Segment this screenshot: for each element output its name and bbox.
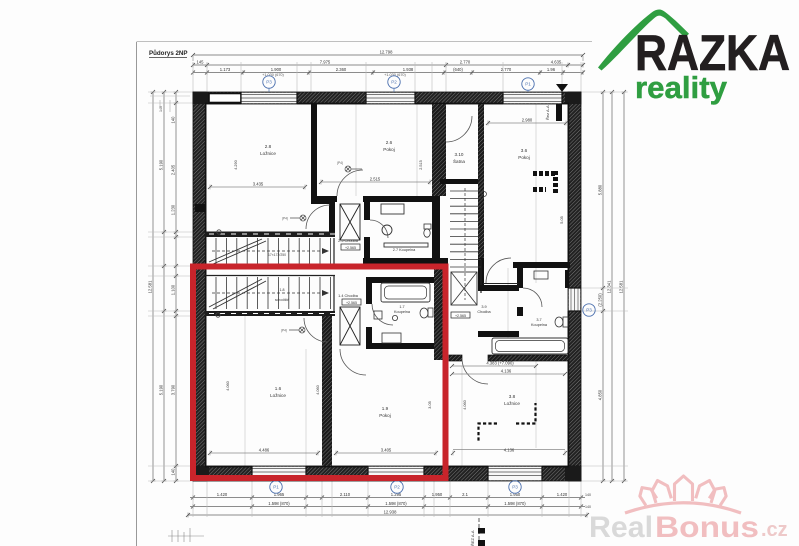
svg-text:1.950: 1.950 bbox=[432, 492, 443, 497]
svg-text:4.383 (+7.090): 4.383 (+7.090) bbox=[486, 361, 514, 366]
svg-text:P1: P1 bbox=[525, 82, 531, 87]
svg-text:1.598 (870): 1.598 (870) bbox=[385, 501, 407, 506]
svg-text:Real: Real bbox=[589, 511, 653, 544]
svg-text:140: 140 bbox=[159, 106, 163, 112]
svg-text:3.790: 3.790 bbox=[171, 384, 176, 395]
svg-text:1.420: 1.420 bbox=[557, 492, 568, 497]
svg-text:2.360: 2.360 bbox=[336, 67, 347, 72]
svg-text:Koupelna: Koupelna bbox=[394, 310, 411, 314]
svg-text:3.8: 3.8 bbox=[509, 394, 516, 399]
svg-text:Ložnice: Ložnice bbox=[260, 151, 276, 156]
svg-text:reality: reality bbox=[635, 70, 728, 105]
svg-text:4.060: 4.060 bbox=[463, 400, 467, 410]
svg-text:.cz: .cz bbox=[761, 519, 788, 541]
svg-text:1.9: 1.9 bbox=[382, 406, 389, 411]
svg-text:1.96: 1.96 bbox=[547, 67, 556, 72]
svg-text:3.6: 3.6 bbox=[521, 148, 528, 153]
svg-text:4.060: 4.060 bbox=[226, 381, 230, 391]
svg-text:4.060: 4.060 bbox=[316, 385, 320, 395]
svg-text:2.515: 2.515 bbox=[370, 177, 381, 182]
svg-text:1.8: 1.8 bbox=[280, 288, 285, 292]
svg-text:4.850: 4.850 bbox=[598, 389, 603, 400]
svg-text:5.05: 5.05 bbox=[560, 216, 564, 223]
svg-text:(P4): (P4) bbox=[337, 161, 343, 165]
svg-text:3.405: 3.405 bbox=[381, 448, 392, 453]
svg-text:P2: P2 bbox=[391, 80, 397, 85]
svg-text:P3: P3 bbox=[512, 485, 518, 490]
svg-text:5.880: 5.880 bbox=[598, 184, 603, 195]
svg-text:2.770: 2.770 bbox=[501, 67, 512, 72]
svg-text:1.938: 1.938 bbox=[403, 67, 414, 72]
svg-text:2.1: 2.1 bbox=[462, 492, 468, 497]
svg-text:2.5 Chodba: 2.5 Chodba bbox=[338, 239, 359, 243]
svg-text:P2: P2 bbox=[394, 485, 400, 490]
svg-text:12.798: 12.798 bbox=[380, 50, 393, 55]
svg-text:140: 140 bbox=[171, 116, 176, 124]
svg-text:(640): (640) bbox=[453, 67, 463, 72]
svg-text:2.405: 2.405 bbox=[171, 164, 176, 175]
svg-text:(2.250): (2.250) bbox=[598, 293, 603, 307]
svg-text:1.598 (870): 1.598 (870) bbox=[504, 501, 526, 506]
svg-text:Koupelna: Koupelna bbox=[531, 323, 548, 327]
svg-text:12.581: 12.581 bbox=[619, 280, 624, 293]
svg-text:Chodba: Chodba bbox=[477, 310, 491, 314]
svg-text:1.100: 1.100 bbox=[171, 284, 176, 295]
svg-text:Ložnice: Ložnice bbox=[504, 401, 520, 406]
svg-text:2.110: 2.110 bbox=[340, 492, 351, 497]
svg-text:3.435: 3.435 bbox=[253, 182, 264, 187]
svg-text:4.136: 4.136 bbox=[504, 448, 515, 453]
svg-text:1.420: 1.420 bbox=[217, 492, 228, 497]
svg-text:17×172/250: 17×172/250 bbox=[268, 253, 286, 257]
svg-text:4.136: 4.136 bbox=[501, 369, 512, 374]
svg-text:+2.565: +2.565 bbox=[346, 301, 357, 305]
svg-text:Řez A-A: Řez A-A bbox=[545, 105, 550, 120]
svg-text:1.900: 1.900 bbox=[271, 67, 282, 72]
svg-text:3.7: 3.7 bbox=[536, 318, 541, 322]
svg-text:Šatna: Šatna bbox=[453, 158, 465, 164]
svg-text:12.341: 12.341 bbox=[607, 280, 612, 293]
svg-text:2.980: 2.980 bbox=[522, 118, 533, 123]
svg-text:(P4): (P4) bbox=[281, 329, 287, 333]
svg-text:1.4 Chodba: 1.4 Chodba bbox=[338, 294, 359, 298]
svg-text:+2.565: +2.565 bbox=[345, 246, 356, 250]
svg-text:1.598 (870): 1.598 (870) bbox=[268, 501, 290, 506]
svg-text:P3: P3 bbox=[266, 80, 272, 85]
svg-text:3.05: 3.05 bbox=[428, 401, 432, 408]
svg-text:145: 145 bbox=[197, 60, 205, 65]
svg-text:1.230: 1.230 bbox=[171, 204, 176, 215]
svg-text:Pokoj: Pokoj bbox=[518, 155, 530, 160]
svg-text:4.486: 4.486 bbox=[259, 448, 270, 453]
svg-text:Bonus: Bonus bbox=[655, 511, 759, 544]
svg-text:2.7 Koupelna: 2.7 Koupelna bbox=[393, 248, 416, 252]
svg-text:(P4): (P4) bbox=[282, 217, 288, 221]
svg-text:5.190: 5.190 bbox=[159, 159, 164, 170]
svg-text:1.6: 1.6 bbox=[275, 386, 282, 391]
svg-text:2.770: 2.770 bbox=[460, 60, 471, 65]
svg-text:3.9: 3.9 bbox=[481, 305, 486, 309]
svg-text:140: 140 bbox=[585, 493, 591, 497]
svg-text:12.938: 12.938 bbox=[384, 510, 397, 515]
svg-text:7.975: 7.975 bbox=[320, 60, 331, 65]
svg-text:4.290: 4.290 bbox=[234, 160, 238, 170]
svg-text:140: 140 bbox=[171, 468, 176, 476]
svg-text:ŘEZ A-A: ŘEZ A-A bbox=[470, 530, 475, 546]
svg-text:140: 140 bbox=[585, 505, 591, 509]
svg-text:4.635: 4.635 bbox=[551, 60, 562, 65]
svg-text:2.515: 2.515 bbox=[419, 160, 423, 170]
svg-text:2.6: 2.6 bbox=[386, 140, 393, 145]
svg-text:schodiště: schodiště bbox=[275, 298, 289, 302]
svg-text:1.173: 1.173 bbox=[220, 67, 231, 72]
svg-text:Půdorys 2NP: Půdorys 2NP bbox=[149, 50, 188, 57]
svg-text:P1: P1 bbox=[273, 485, 279, 490]
svg-text:P3: P3 bbox=[586, 308, 592, 313]
svg-text:Pokoj: Pokoj bbox=[383, 147, 395, 152]
svg-text:5.190: 5.190 bbox=[159, 384, 164, 395]
svg-text:2.8: 2.8 bbox=[265, 144, 272, 149]
svg-text:3.10: 3.10 bbox=[455, 152, 464, 157]
svg-text:1.7: 1.7 bbox=[399, 305, 404, 309]
svg-text:12.581: 12.581 bbox=[148, 280, 153, 293]
svg-text:Ložnice: Ložnice bbox=[270, 393, 286, 398]
svg-text:Pokoj: Pokoj bbox=[379, 413, 391, 418]
svg-text:+2.565: +2.565 bbox=[455, 314, 466, 318]
